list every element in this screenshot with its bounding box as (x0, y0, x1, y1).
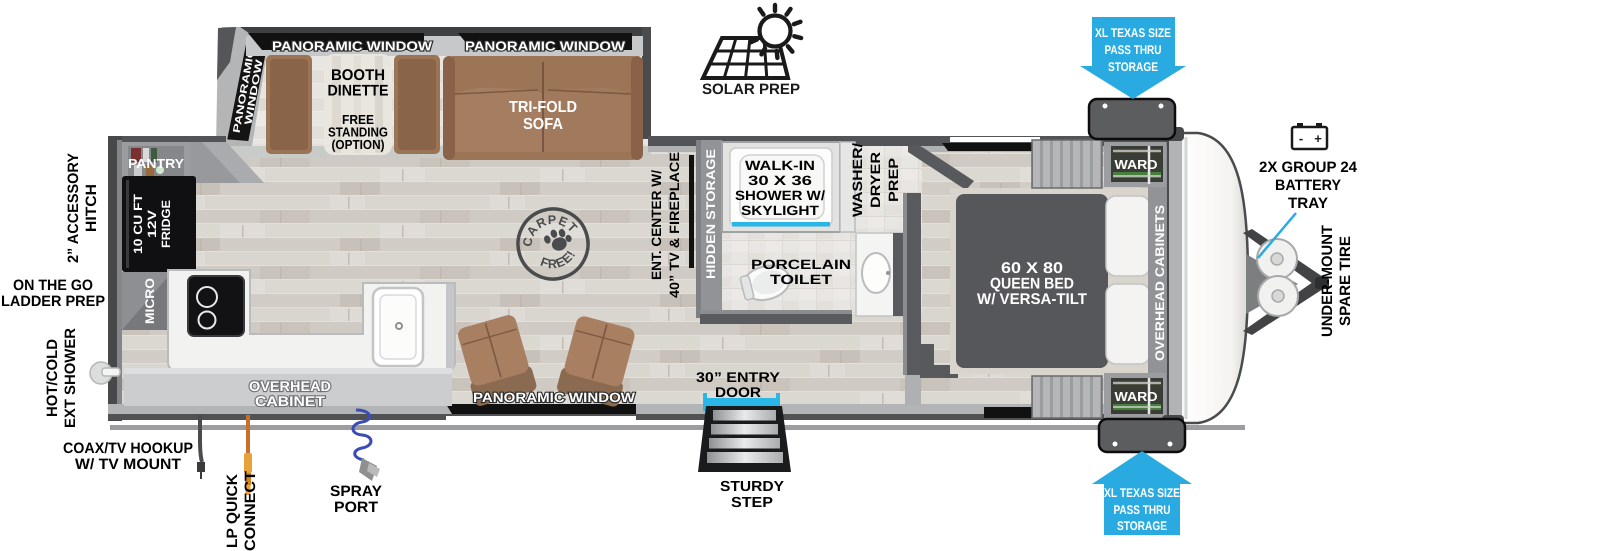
svg-text:CABINET: CABINET (255, 393, 325, 409)
svg-text:SPARE TIRE: SPARE TIRE (1337, 236, 1354, 326)
svg-text:PASS THRU: PASS THRU (1105, 43, 1162, 57)
svg-text:OVERHEAD: OVERHEAD (249, 378, 331, 394)
svg-text:WASHER/: WASHER/ (850, 143, 865, 217)
svg-text:STORAGE: STORAGE (1108, 60, 1158, 74)
svg-text:(OPTION): (OPTION) (332, 137, 385, 152)
svg-text:10 CU FT: 10 CU FT (131, 193, 145, 254)
svg-text:PANORAMIC WINDOW: PANORAMIC WINDOW (465, 39, 626, 54)
svg-text:SOLAR PREP: SOLAR PREP (702, 81, 800, 98)
svg-text:HOT/COLD: HOT/COLD (44, 339, 61, 417)
svg-text:HITCH: HITCH (83, 184, 100, 232)
svg-text:PANTRY: PANTRY (128, 156, 184, 171)
svg-text:DRYER: DRYER (868, 152, 883, 208)
svg-text:BOOTH: BOOTH (331, 67, 385, 84)
svg-text:12V: 12V (145, 210, 159, 238)
svg-text:SPRAY: SPRAY (330, 483, 382, 500)
svg-text:LADDER PREP: LADDER PREP (1, 293, 105, 310)
svg-text:SOFA: SOFA (523, 116, 563, 133)
svg-text:LP QUICK: LP QUICK (224, 474, 241, 548)
svg-text:ENT. CENTER W/: ENT. CENTER W/ (649, 170, 664, 280)
svg-text:STORAGE: STORAGE (1117, 519, 1167, 533)
svg-text:STEP: STEP (731, 495, 773, 511)
svg-text:PORCELAIN: PORCELAIN (751, 257, 851, 272)
svg-text:PANORAMIC WINDOW: PANORAMIC WINDOW (473, 390, 635, 405)
svg-text:PASS THRU: PASS THRU (1114, 503, 1171, 517)
svg-text:WARD: WARD (1115, 157, 1158, 172)
svg-text:30 X 36: 30 X 36 (748, 173, 813, 188)
svg-text:OVERHEAD CABINETS: OVERHEAD CABINETS (1153, 205, 1167, 361)
svg-text:2” ACCESSORY: 2” ACCESSORY (65, 153, 82, 263)
svg-text:W/ TV MOUNT: W/ TV MOUNT (75, 456, 181, 473)
svg-text:WARD: WARD (1115, 389, 1158, 404)
svg-text:-: - (1299, 131, 1303, 146)
svg-text:60 X 80: 60 X 80 (1001, 260, 1063, 277)
svg-text:EXT SHOWER: EXT SHOWER (62, 328, 79, 428)
svg-text:QUEEN BED: QUEEN BED (990, 276, 1074, 293)
svg-text:TRAY: TRAY (1288, 195, 1328, 212)
svg-text:DOOR: DOOR (715, 384, 761, 400)
svg-text:TOILET: TOILET (770, 272, 833, 287)
svg-text:HIDDEN STORAGE: HIDDEN STORAGE (704, 149, 718, 279)
svg-text:40” TV & FIREPLACE: 40” TV & FIREPLACE (667, 152, 682, 298)
svg-text:2X GROUP 24: 2X GROUP 24 (1259, 159, 1358, 176)
svg-text:MICRO: MICRO (143, 278, 157, 324)
svg-text:+: + (1314, 131, 1322, 146)
svg-text:BATTERY: BATTERY (1275, 177, 1341, 194)
svg-text:SHOWER W/: SHOWER W/ (735, 188, 825, 203)
svg-text:DINETTE: DINETTE (328, 83, 389, 100)
svg-text:XL TEXAS SIZE: XL TEXAS SIZE (1104, 486, 1180, 500)
svg-text:COAX/TV HOOKUP: COAX/TV HOOKUP (63, 440, 193, 457)
svg-text:WALK-IN: WALK-IN (745, 158, 815, 173)
svg-text:PANORAMIC WINDOW: PANORAMIC WINDOW (272, 39, 433, 54)
svg-text:TRI-FOLD: TRI-FOLD (509, 99, 577, 116)
svg-text:CONNECT: CONNECT (242, 471, 259, 551)
svg-text:SKYLIGHT: SKYLIGHT (741, 203, 820, 218)
svg-text:XL TEXAS SIZE: XL TEXAS SIZE (1095, 26, 1171, 40)
svg-text:30” ENTRY: 30” ENTRY (696, 369, 781, 385)
svg-text:W/ VERSA-TILT: W/ VERSA-TILT (977, 291, 1088, 308)
svg-text:PORT: PORT (334, 499, 378, 516)
svg-text:PREP: PREP (886, 158, 901, 202)
svg-text:ON THE GO: ON THE GO (13, 277, 93, 294)
svg-text:FRIDGE: FRIDGE (159, 200, 173, 248)
svg-text:STURDY: STURDY (720, 479, 784, 495)
svg-text:UNDER-MOUNT: UNDER-MOUNT (1319, 225, 1336, 337)
